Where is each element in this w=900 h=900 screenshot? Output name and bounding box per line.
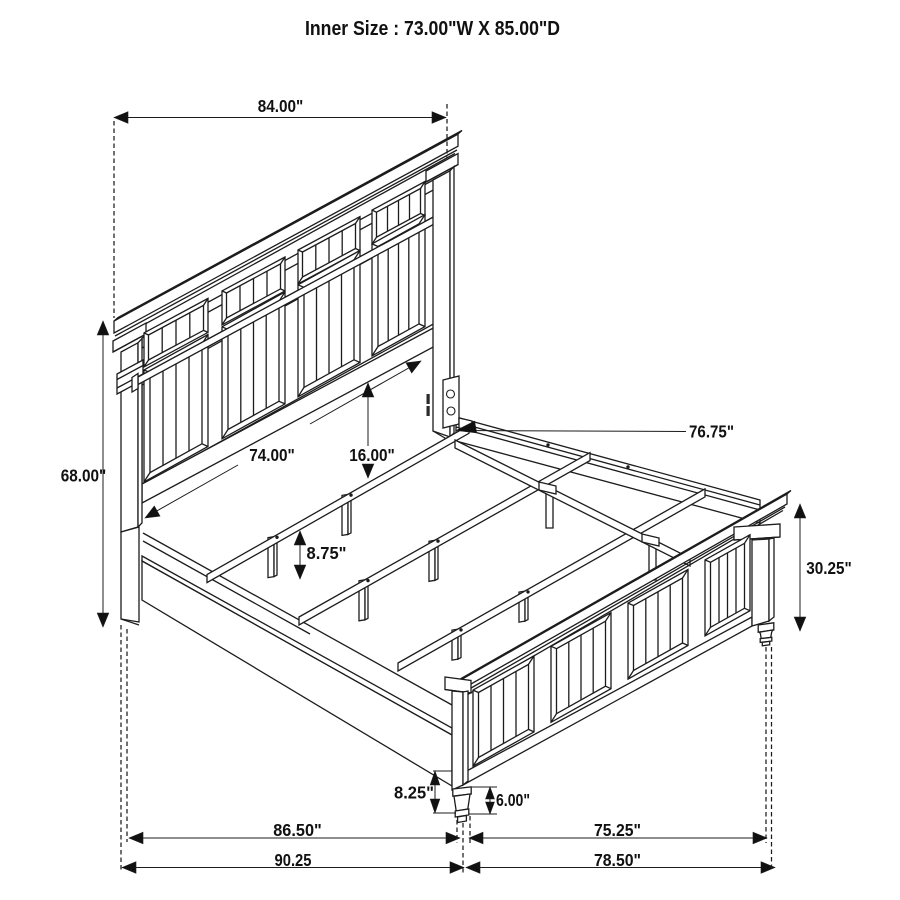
svg-text:86.50": 86.50"	[273, 820, 322, 840]
svg-text:Inner Size : 73.00"W X 85.00"D: Inner Size : 73.00"W X 85.00"D	[305, 17, 560, 40]
svg-text:8.75": 8.75"	[307, 543, 347, 563]
svg-text:75.25": 75.25"	[594, 820, 641, 840]
svg-text:16.00": 16.00"	[349, 445, 395, 465]
svg-text:76.75": 76.75"	[689, 422, 734, 442]
svg-text:8.25": 8.25"	[394, 783, 434, 803]
svg-text:74.00": 74.00"	[249, 445, 295, 465]
svg-text:68.00": 68.00"	[61, 466, 107, 486]
svg-text:6.00": 6.00"	[496, 790, 530, 810]
svg-text:84.00": 84.00"	[258, 96, 304, 116]
svg-text:30.25": 30.25"	[806, 558, 852, 578]
